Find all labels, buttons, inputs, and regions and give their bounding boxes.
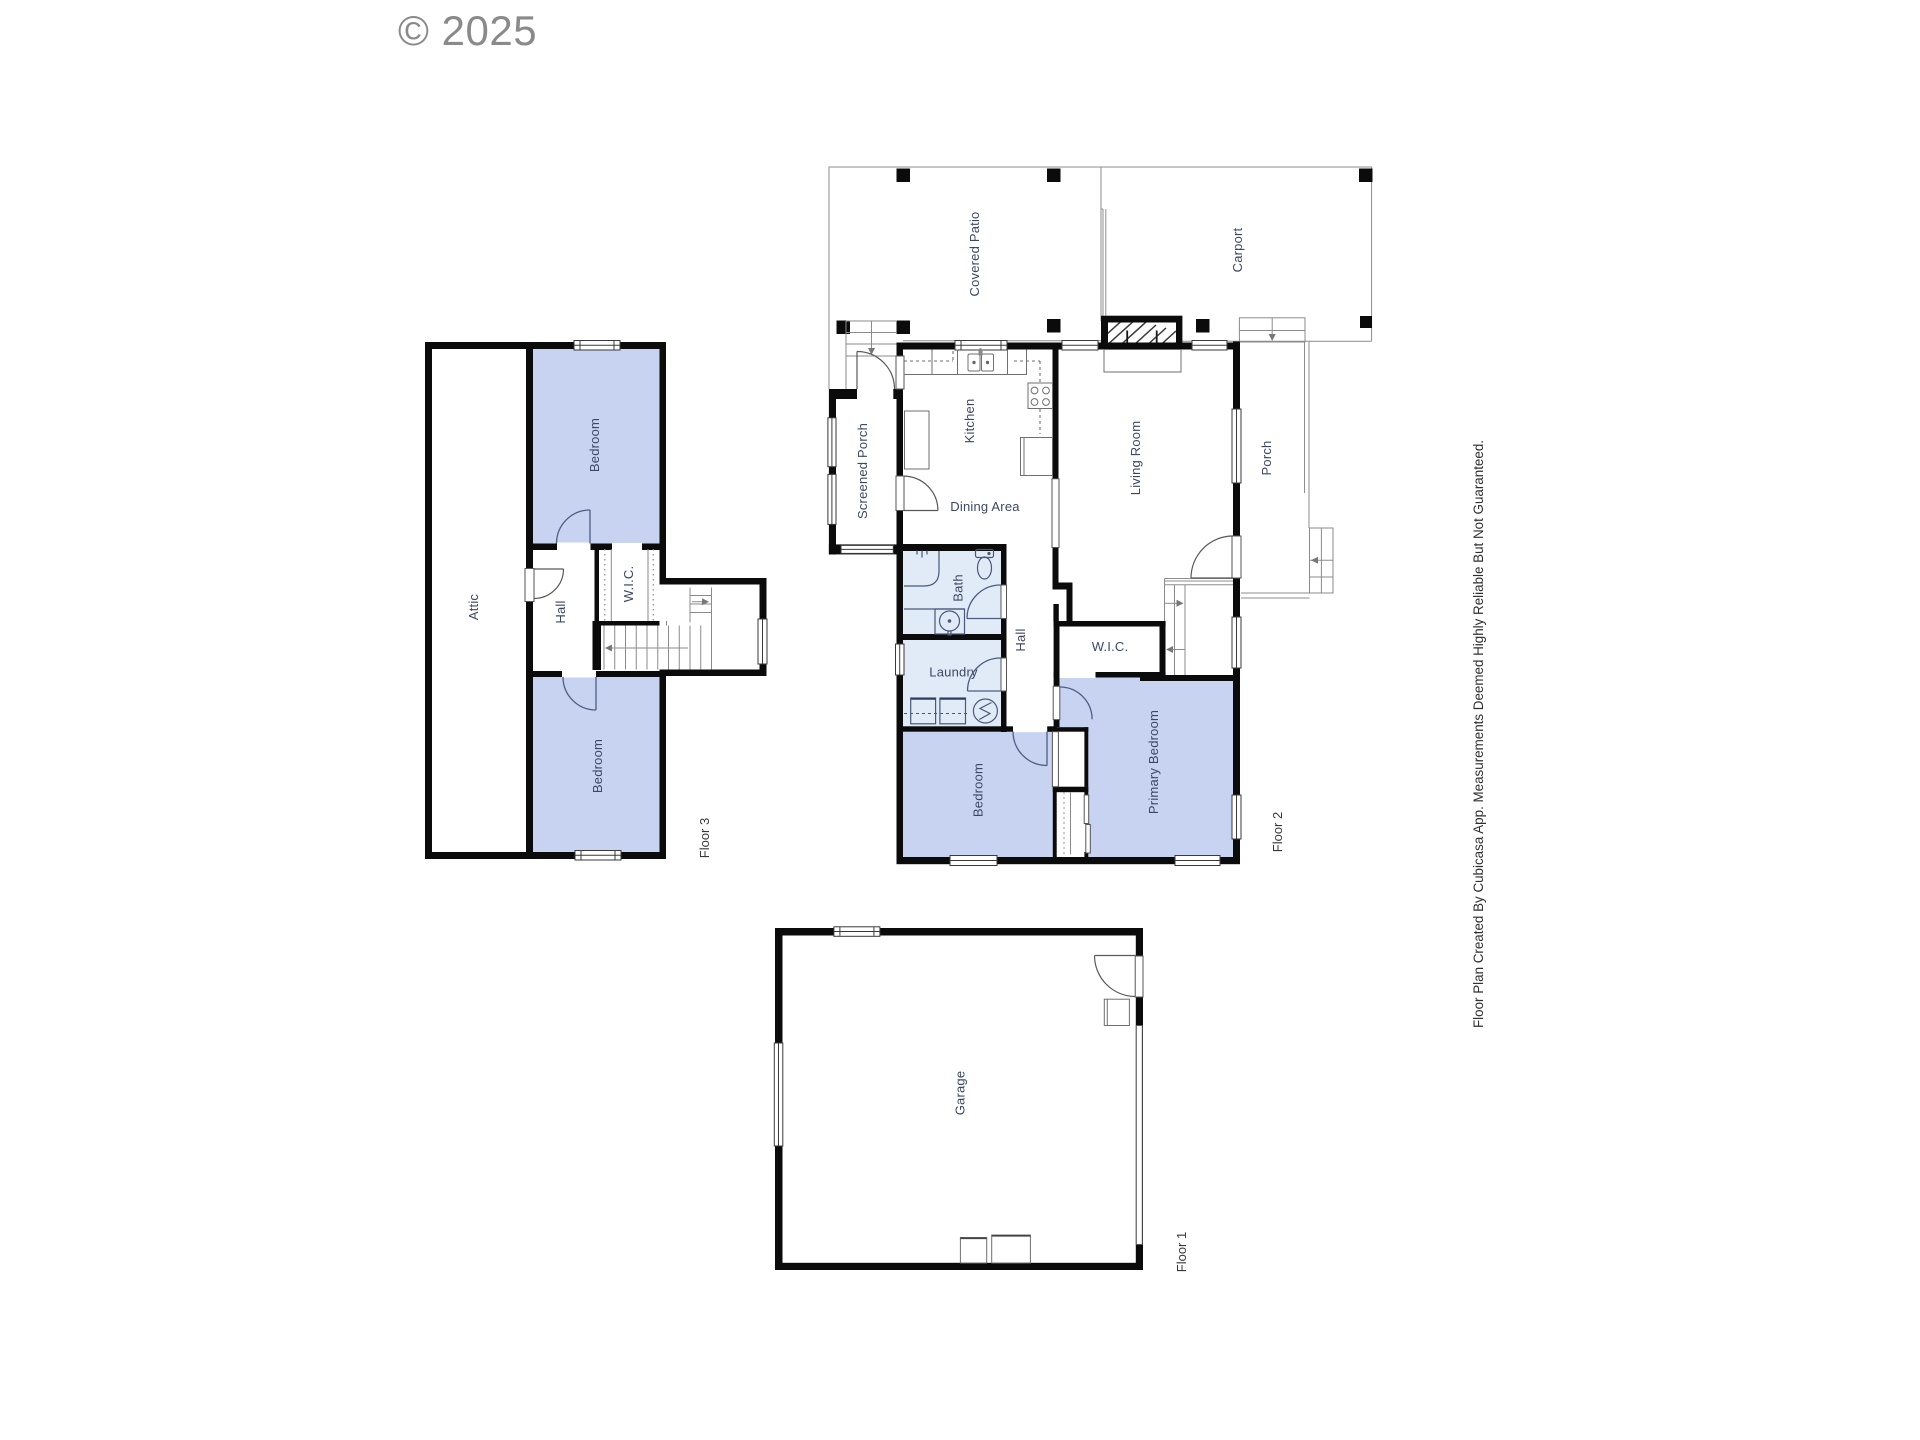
svg-text:Garage: Garage — [953, 1071, 968, 1116]
svg-text:Bedroom: Bedroom — [590, 739, 605, 793]
svg-text:W.I.C.: W.I.C. — [621, 566, 636, 603]
svg-text:Dining Area: Dining Area — [950, 499, 1020, 514]
svg-text:Hall: Hall — [553, 600, 568, 623]
svg-text:Laundry: Laundry — [929, 665, 978, 680]
svg-text:Kitchen: Kitchen — [962, 399, 977, 444]
svg-text:Floor 3: Floor 3 — [697, 818, 712, 858]
svg-text:Hall: Hall — [1013, 628, 1028, 651]
svg-text:Covered Patio: Covered Patio — [967, 212, 982, 297]
svg-text:Living Room: Living Room — [1128, 421, 1143, 495]
svg-text:Carport: Carport — [1230, 227, 1245, 272]
svg-text:Floor Plan Created By Cubicasa: Floor Plan Created By Cubicasa App. Meas… — [1471, 440, 1486, 1028]
svg-text:Screened Porch: Screened Porch — [855, 423, 870, 519]
svg-text:W.I.C.: W.I.C. — [1092, 639, 1129, 654]
svg-text:Bedroom: Bedroom — [587, 418, 602, 472]
svg-text:© 2025: © 2025 — [398, 7, 537, 54]
svg-text:Floor 1: Floor 1 — [1174, 1232, 1189, 1272]
svg-text:Attic: Attic — [466, 594, 481, 621]
svg-text:Porch: Porch — [1259, 441, 1274, 476]
svg-text:Bedroom: Bedroom — [971, 763, 986, 817]
svg-text:Primary Bedroom: Primary Bedroom — [1146, 710, 1161, 814]
svg-text:Floor 2: Floor 2 — [1270, 812, 1285, 852]
svg-text:Bath: Bath — [951, 574, 966, 602]
